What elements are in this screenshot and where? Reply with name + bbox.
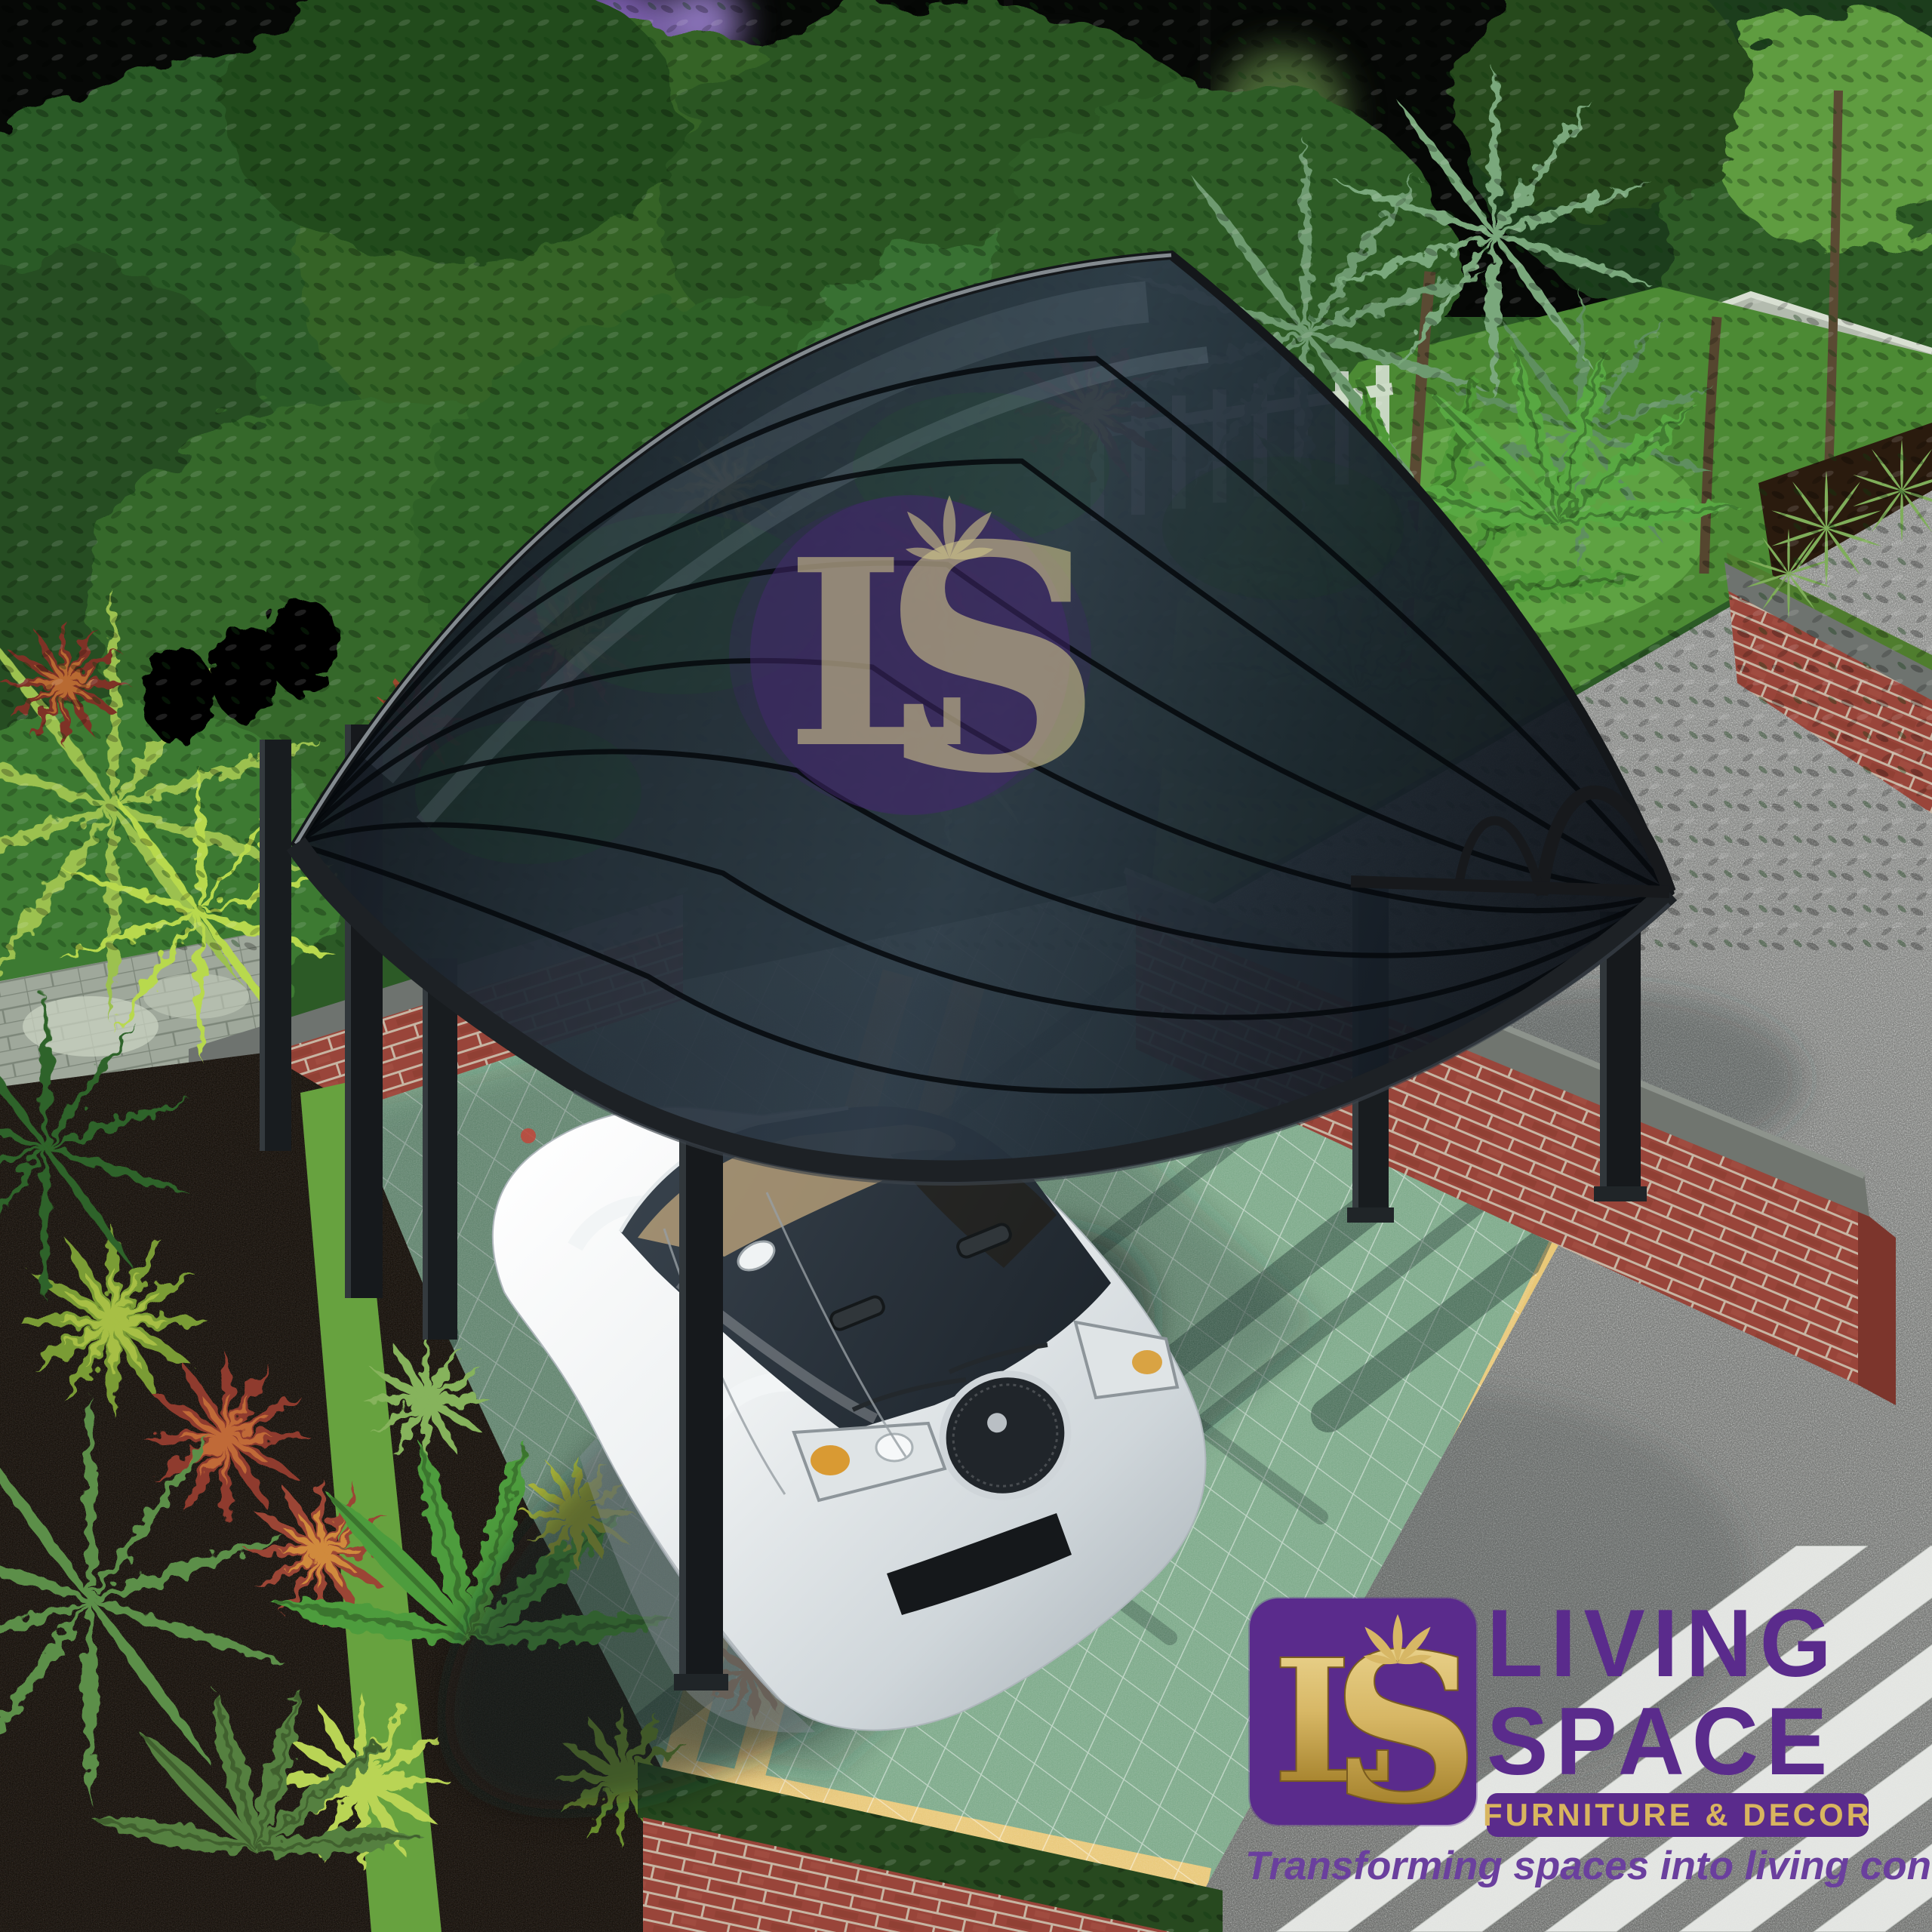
carport-3d-render: L S L S LIVING SPACE FURNITURE & DECOR T… bbox=[0, 0, 1932, 1932]
logo-tagline: Transforming spaces into living concepts bbox=[1245, 1843, 1875, 1889]
logo-banner-text: FURNITURE & DECOR bbox=[1483, 1797, 1872, 1833]
watermark-letter-s: S bbox=[880, 478, 1103, 841]
logo-monogram: L S bbox=[1250, 1598, 1476, 1825]
logo-badge: L S bbox=[1250, 1598, 1476, 1825]
logo-name-line2: SPACE bbox=[1487, 1694, 1835, 1789]
living-space-logo: L S LIVING SPACE FURNITURE & DECOR Trans… bbox=[1244, 1591, 1875, 1893]
ls-watermark: L S bbox=[750, 478, 1103, 841]
logo-letter-s: S bbox=[1331, 1609, 1476, 1825]
logo-name-line1: LIVING bbox=[1487, 1595, 1839, 1691]
logo-banner: FURNITURE & DECOR bbox=[1487, 1793, 1869, 1837]
